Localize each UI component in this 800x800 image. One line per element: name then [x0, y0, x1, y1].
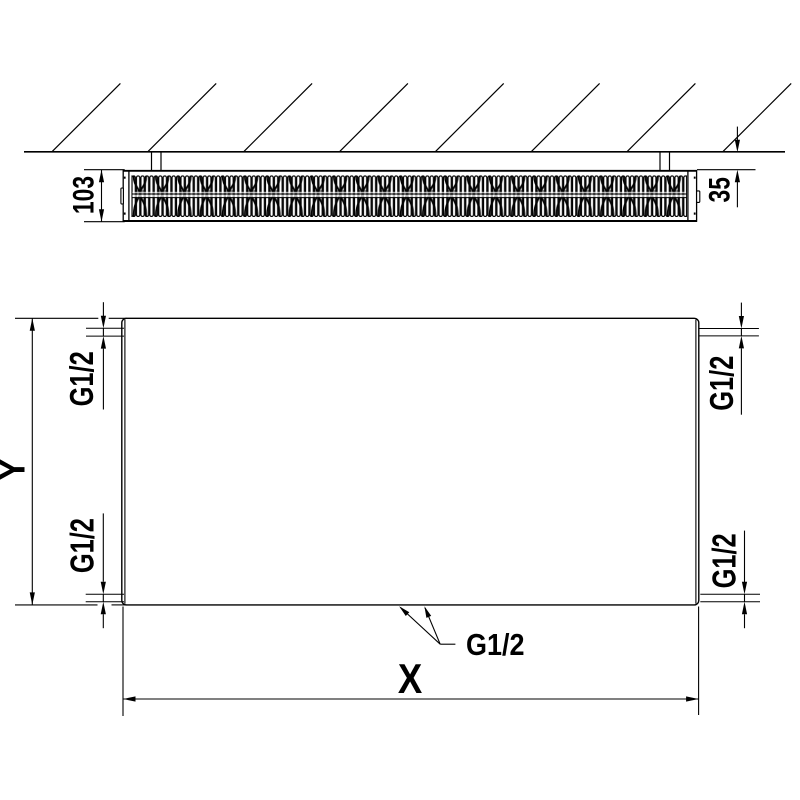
svg-text:X: X: [398, 656, 422, 703]
svg-text:35: 35: [702, 177, 736, 203]
svg-text:G1/2: G1/2: [64, 518, 101, 573]
svg-text:Y: Y: [0, 458, 33, 481]
svg-text:103: 103: [66, 176, 100, 214]
svg-text:G1/2: G1/2: [466, 628, 524, 662]
svg-text:G1/2: G1/2: [704, 356, 741, 411]
svg-text:G1/2: G1/2: [706, 533, 743, 588]
svg-text:G1/2: G1/2: [64, 351, 101, 406]
